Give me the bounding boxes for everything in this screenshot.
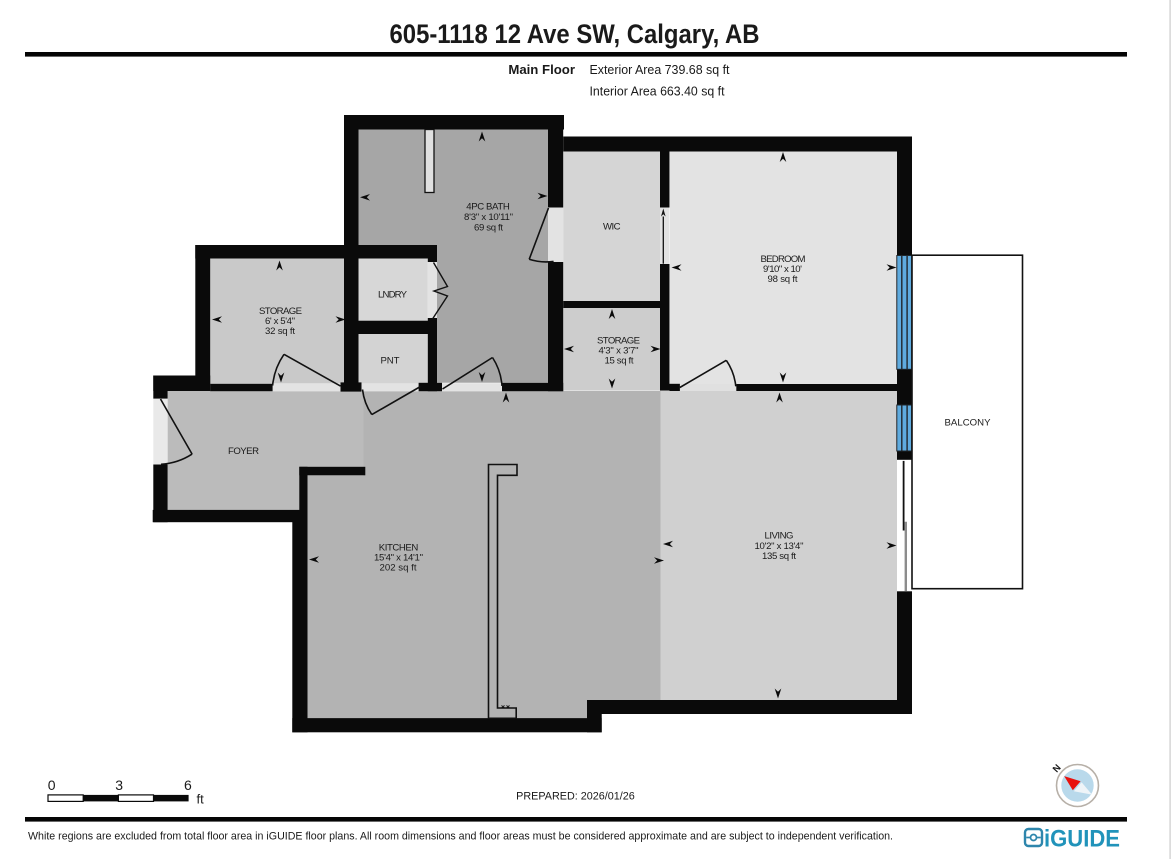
svg-text:ft: ft (197, 792, 205, 807)
svg-text:6: 6 (184, 777, 192, 793)
svg-text:FOYER: FOYER (228, 446, 259, 457)
svg-text:4PC BATH: 4PC BATH (466, 202, 510, 213)
svg-text:BALCONY: BALCONY (945, 418, 992, 429)
svg-text:iGUIDE: iGUIDE (1044, 826, 1120, 853)
svg-text:PNT: PNT (381, 355, 400, 366)
svg-text:8'3" x 10'11": 8'3" x 10'11" (464, 212, 513, 223)
svg-text:0: 0 (48, 777, 56, 793)
svg-text:WIC: WIC (603, 222, 621, 233)
svg-text:3: 3 (115, 777, 123, 793)
svg-text:PREPARED: 2026/01/26: PREPARED: 2026/01/26 (516, 790, 635, 802)
svg-text:605-1118 12 Ave SW, Calgary, A: 605-1118 12 Ave SW, Calgary, AB (390, 19, 760, 49)
svg-text:White regions are excluded fro: White regions are excluded from total fl… (28, 831, 893, 843)
svg-text:69 sq ft: 69 sq ft (474, 223, 503, 234)
svg-text:15 sq ft: 15 sq ft (605, 356, 634, 367)
svg-text:Exterior Area 739.68 sq ft: Exterior Area 739.68 sq ft (590, 62, 730, 77)
svg-text:135 sq ft: 135 sq ft (762, 551, 796, 562)
svg-text:LIVING: LIVING (765, 531, 794, 542)
svg-text:202 sq ft: 202 sq ft (380, 563, 417, 574)
svg-text:32 sq ft: 32 sq ft (265, 326, 295, 337)
svg-text:Interior Area 663.40 sq ft: Interior Area 663.40 sq ft (590, 84, 725, 99)
svg-text:LNDRY: LNDRY (378, 290, 408, 301)
svg-text:Main Floor: Main Floor (508, 62, 575, 77)
svg-text:98 sq ft: 98 sq ft (768, 274, 798, 285)
